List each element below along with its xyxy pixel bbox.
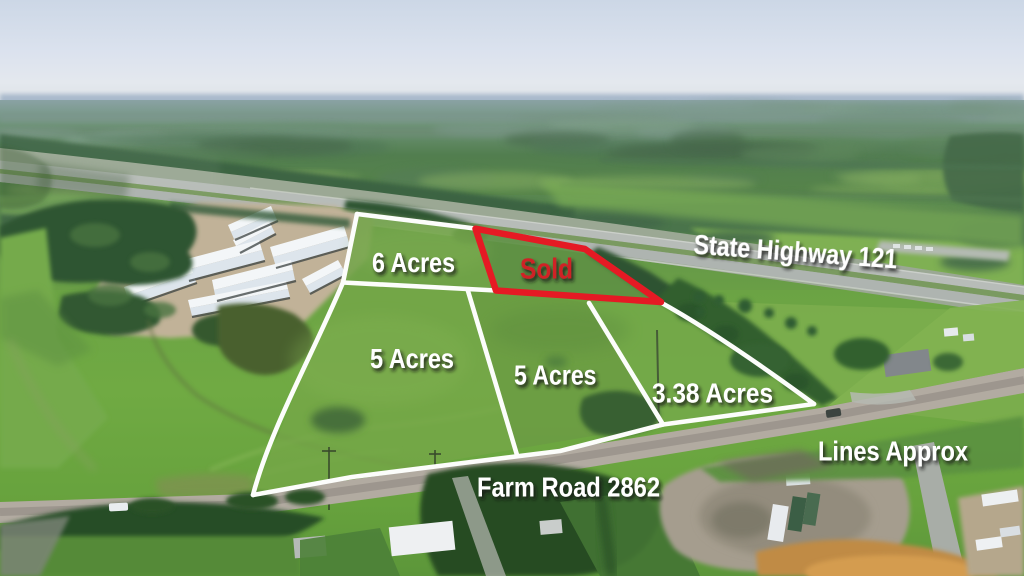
svg-text:3.38 Acres: 3.38 Acres bbox=[652, 378, 773, 409]
svg-text:Sold: Sold bbox=[520, 254, 573, 286]
svg-text:5 Acres: 5 Acres bbox=[514, 360, 597, 391]
svg-text:Farm Road 2862: Farm Road 2862 bbox=[477, 471, 660, 502]
svg-text:6 Acres: 6 Acres bbox=[372, 247, 455, 278]
svg-text:5 Acres: 5 Acres bbox=[370, 343, 454, 374]
svg-text:Lines Approx: Lines Approx bbox=[818, 436, 968, 467]
